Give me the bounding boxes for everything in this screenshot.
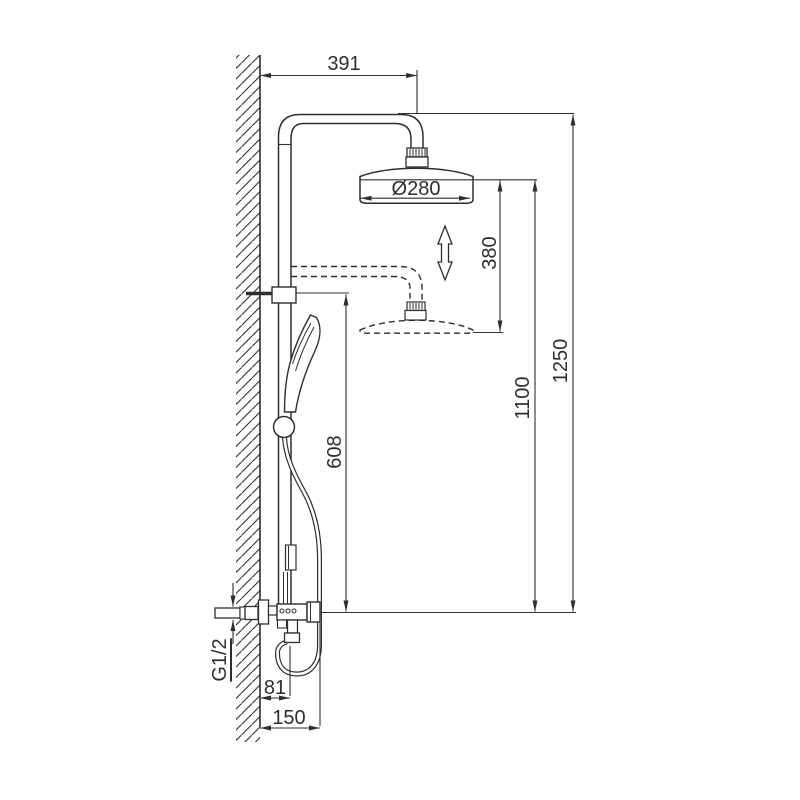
shower-head-connector [406,148,428,167]
slider-knob [274,417,295,438]
lower-head-connector [405,302,426,320]
hand-shower [285,315,321,412]
dim-inlet-thread-label: G1/2 [210,638,230,681]
dim-hose-offset-label: 81 [264,678,286,698]
mixer-valve [269,602,321,643]
dim-height-adjustment-label: 380 [480,236,500,269]
diverter-knob [286,545,297,570]
technical-drawing-canvas: 391 Ø280 380 1100 1250 608 G1/2 81 150 [0,0,800,800]
dim-head-height-label: 1100 [513,376,533,419]
wall-hatching [236,55,260,742]
dim-total-height-label: 1250 [551,339,571,384]
dim-valve-depth-label: 150 [272,708,305,728]
shower-diagram-linework [0,0,800,800]
dim-reach-label: 391 [327,54,360,74]
dim-rail-height-label: 608 [325,435,345,468]
dim-head-diameter-label: Ø280 [392,179,441,199]
height-adjust-arrow-icon [438,226,452,280]
